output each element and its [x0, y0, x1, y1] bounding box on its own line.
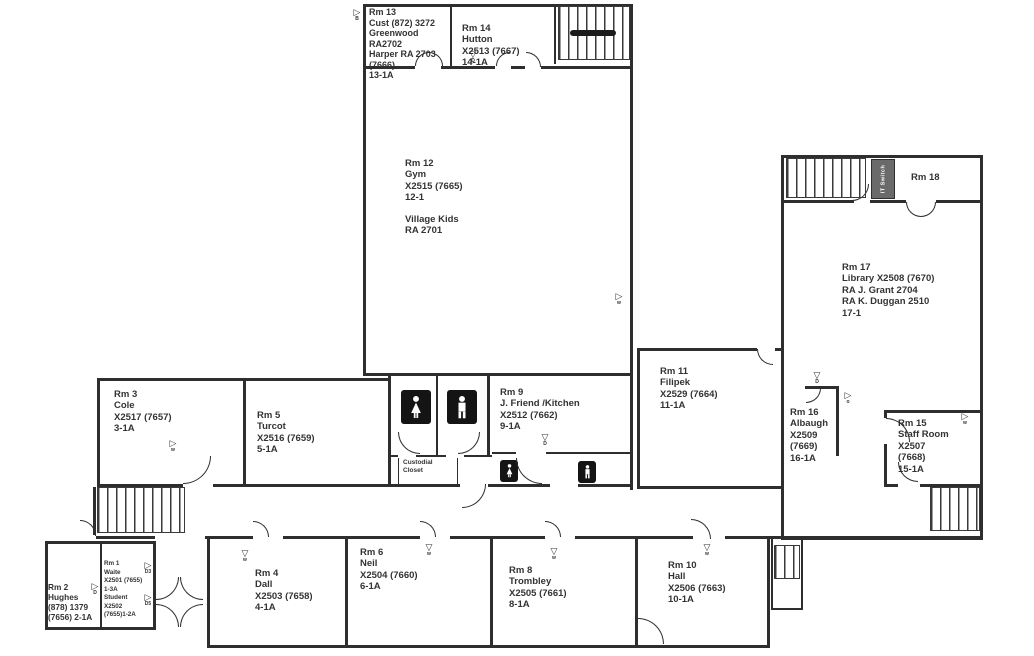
- door-swing-arc: [906, 202, 921, 217]
- label-line: Turcot: [257, 421, 315, 432]
- label-line: Albaugh: [790, 418, 828, 429]
- room-label-rm2: Rm 2Hughes(878) 1379(7656) 2-1A: [48, 583, 92, 623]
- marker-label: w: [166, 448, 180, 453]
- label-line: 6-1A: [360, 581, 418, 592]
- label-line: Rm 1: [104, 560, 142, 569]
- label-line: Rm 6: [360, 547, 418, 558]
- wall: [93, 536, 983, 539]
- door-window-marker: ▽w: [700, 543, 714, 557]
- marker-label: w: [547, 556, 561, 561]
- wall: [450, 4, 452, 68]
- wall: [771, 536, 773, 610]
- door-swing-arc: [180, 604, 203, 627]
- label-line: Neil: [360, 558, 418, 569]
- label-line: Dall: [255, 579, 313, 590]
- room-label-rm18: Rm 18: [911, 172, 940, 183]
- door-window-marker: ▽w: [238, 549, 252, 563]
- marker-label: D: [88, 591, 102, 596]
- label-line: (7669): [790, 441, 828, 452]
- label-line: Waite: [104, 569, 142, 578]
- restroom-men-small-icon: [578, 461, 596, 483]
- stairs-icon: [558, 6, 630, 60]
- wall: [980, 155, 983, 540]
- label-line: Library X2508 (7670): [842, 273, 934, 284]
- marker-label: w: [612, 301, 626, 306]
- restroom-men-icon: [447, 390, 477, 424]
- room-label-rm11: Rm 11FilipekX2529 (7664)11-1A: [660, 366, 718, 412]
- label-line: RA J. Grant 2704: [842, 285, 934, 296]
- wall: [781, 155, 784, 540]
- label-line: (7656) 2-1A: [48, 613, 92, 623]
- stairs-icon: [774, 545, 800, 579]
- door-swing-arc: [183, 456, 211, 484]
- room-label-rm17-library: Rm 17Library X2508 (7670)RA J. Grant 270…: [842, 262, 934, 319]
- label-line: Rm 10: [668, 560, 726, 571]
- label-line: X2529 (7664): [660, 389, 718, 400]
- door-swing-arc: [420, 521, 436, 537]
- door-swing-arc: [253, 521, 269, 537]
- wall: [390, 484, 633, 487]
- label-line: 11-1A: [660, 400, 718, 411]
- custodial-closet: CustodialCloset: [398, 455, 458, 486]
- door-swing-arc: [156, 604, 179, 627]
- room-label-rm12-gym: Rm 12GymX2515 (7665)12-1Village KidsRA 2…: [405, 158, 463, 236]
- door-window-marker: ▽w: [422, 543, 436, 557]
- room-label-rm10: Rm 10HallX2506 (7663)10-1A: [668, 560, 726, 606]
- door-swing-arc: [429, 52, 443, 66]
- label-line: Rm 18: [911, 172, 940, 183]
- label-line: Rm 8: [509, 565, 567, 576]
- door-window-marker: ▷B: [350, 8, 364, 22]
- label-line: RA 2701: [405, 225, 463, 236]
- label-line: X2507: [898, 441, 949, 452]
- door-opening: [155, 535, 205, 541]
- label-line: Gym: [405, 169, 463, 180]
- marker-label: D5: [141, 602, 155, 607]
- marker-label: D: [466, 59, 480, 64]
- label-line: Trombley: [509, 576, 567, 587]
- wall: [363, 373, 633, 376]
- marker-label: D3: [141, 570, 155, 575]
- label-line: Cust (872) 3272: [369, 18, 436, 29]
- door-opening: [446, 454, 464, 458]
- label-line: X2516 (7659): [257, 433, 315, 444]
- label-line: X2504 (7660): [360, 570, 418, 581]
- label-line: Custodial: [403, 459, 433, 467]
- door-window-marker: ▽D: [466, 50, 480, 64]
- door-opening: [550, 483, 578, 488]
- label-line: 8-1A: [509, 599, 567, 610]
- floor-plan: Rm 13Cust (872) 3272GreenwoodRA2702Harpe…: [0, 0, 1034, 656]
- label-line: 10-1A: [668, 594, 726, 605]
- label-line: (7655)1-2A: [104, 611, 142, 620]
- label-line: Rm 13: [369, 7, 436, 18]
- marker-label: w: [958, 421, 972, 426]
- door-swing-arc: [921, 202, 936, 217]
- wall: [637, 348, 640, 489]
- marker-label: B: [350, 17, 364, 22]
- door-swing-arc: [806, 388, 821, 403]
- wall: [801, 536, 803, 610]
- label-line: 4-1A: [255, 602, 313, 613]
- label-line: 12-1: [405, 192, 463, 203]
- label-line: J. Friend /Kitchen: [500, 398, 580, 409]
- wall: [637, 486, 783, 489]
- wall: [771, 608, 803, 610]
- label-line: Hall: [668, 571, 726, 582]
- restroom-women-small-icon: [500, 460, 518, 482]
- door-window-marker: ▷D3: [141, 561, 155, 575]
- door-opening: [516, 451, 546, 455]
- label-line: Rm 12: [405, 158, 463, 169]
- wall: [554, 4, 556, 64]
- room-label-rm9: Rm 9J. Friend /KitchenX2512 (7662)9-1A: [500, 387, 580, 433]
- label-line: 13-1A: [369, 70, 436, 81]
- label-line: Rm 11: [660, 366, 718, 377]
- wall: [492, 452, 633, 454]
- door-opening: [898, 483, 920, 488]
- stair-handrail: [570, 30, 616, 36]
- label-line: Cole: [114, 400, 172, 411]
- stairs-icon: [97, 487, 185, 533]
- wall: [207, 645, 770, 648]
- door-swing-arc: [638, 618, 664, 644]
- label-line: Closet: [403, 467, 433, 475]
- label-line: X2512 (7662): [500, 410, 580, 421]
- door-window-marker: ▽D: [810, 371, 824, 385]
- label-line: 5-1A: [257, 444, 315, 455]
- wall: [767, 536, 770, 648]
- label-line: Rm 17: [842, 262, 934, 273]
- room-label-rm6: Rm 6NeilX2504 (7660)6-1A: [360, 547, 418, 593]
- label-line: Hutton: [462, 34, 520, 45]
- label-line: Village Kids: [405, 214, 463, 225]
- door-swing-arc: [898, 462, 918, 482]
- wall: [781, 200, 983, 203]
- label-line: X2506 (7663): [668, 583, 726, 594]
- label-line: Rm 9: [500, 387, 580, 398]
- marker-label: w: [238, 558, 252, 563]
- door-swing-arc: [691, 519, 711, 539]
- door-window-marker: ▷o: [841, 391, 855, 405]
- wall: [490, 536, 493, 648]
- wall: [436, 376, 438, 457]
- label-line: 1-3A: [104, 586, 142, 595]
- marker-label: o: [841, 400, 855, 405]
- wall: [363, 4, 366, 376]
- label-line: 9-1A: [500, 421, 580, 432]
- label-line: Greenwood: [369, 28, 436, 39]
- door-opening: [183, 483, 213, 488]
- marker-label: D: [538, 442, 552, 447]
- label-line: 17-1: [842, 308, 934, 319]
- label-line: [405, 204, 463, 214]
- label-line: Filipek: [660, 377, 718, 388]
- wall: [487, 376, 490, 457]
- room-label-rm8: Rm 8TrombleyX2505 (7661)8-1A: [509, 565, 567, 611]
- label-line: X2501 (7655): [104, 577, 142, 586]
- label-line: X2505 (7661): [509, 588, 567, 599]
- label-line: RA2702: [369, 39, 436, 50]
- room-label-rm3: Rm 3ColeX2517 (7657)3-1A: [114, 389, 172, 435]
- door-swing-arc: [458, 432, 480, 454]
- wall: [97, 378, 100, 487]
- door-window-marker: ▷D: [88, 582, 102, 596]
- marker-label: w: [422, 552, 436, 557]
- door-window-marker: ▷D5: [141, 593, 155, 607]
- label-line: X2502: [104, 603, 142, 612]
- label-line: X2517 (7657): [114, 412, 172, 423]
- label-line: 16-1A: [790, 453, 828, 464]
- label-line: Rm 16: [790, 407, 828, 418]
- door-swing-arc: [398, 432, 420, 454]
- label-line: Rm 4: [255, 568, 313, 579]
- it-switch-box: IT Switch: [871, 159, 895, 199]
- label-line: X2509: [790, 430, 828, 441]
- wall: [388, 373, 391, 487]
- label-line: Student: [104, 594, 142, 603]
- wall: [45, 541, 48, 630]
- wall: [345, 536, 348, 648]
- door-swing-arc: [545, 521, 561, 537]
- label-line: RA K. Duggan 2510: [842, 296, 934, 307]
- door-window-marker: ▷w: [612, 292, 626, 306]
- label-line: 3-1A: [114, 423, 172, 434]
- wall: [836, 386, 839, 456]
- wall: [243, 378, 246, 487]
- label-line: Rm 14: [462, 23, 520, 34]
- door-swing-arc: [526, 52, 541, 67]
- stairs-icon: [786, 158, 866, 198]
- room-label-rm16: Rm 16AlbaughX2509(7669)16-1A: [790, 407, 828, 464]
- room-label-rm4: Rm 4DallX2503 (7658)4-1A: [255, 568, 313, 614]
- door-swing-arc: [462, 484, 486, 508]
- label-line: Rm 3: [114, 389, 172, 400]
- door-swing-arc: [516, 458, 542, 484]
- label-line: X2503 (7658): [255, 591, 313, 602]
- label-line: Rm 5: [257, 410, 315, 421]
- door-swing-arc: [156, 577, 179, 600]
- label-line: X2515 (7665): [405, 181, 463, 192]
- stairs-icon: [930, 487, 980, 531]
- it-switch-label: IT Switch: [880, 165, 886, 194]
- door-window-marker: ▷w: [958, 412, 972, 426]
- wall: [207, 536, 210, 648]
- door-window-marker: ▽w: [547, 547, 561, 561]
- door-opening: [398, 454, 416, 458]
- door-swing-arc: [180, 577, 203, 600]
- marker-label: D: [810, 380, 824, 385]
- marker-label: w: [700, 552, 714, 557]
- door-window-marker: ▽D: [538, 433, 552, 447]
- door-swing-arc: [757, 349, 773, 365]
- door-window-marker: ▷w: [166, 439, 180, 453]
- custodial-closet-label: CustodialCloset: [403, 459, 433, 475]
- restroom-women-icon: [401, 390, 431, 424]
- room-label-rm1: Rm 1WaiteX2501 (7655)1-3AStudentX2502(76…: [104, 560, 142, 620]
- wall: [630, 4, 633, 490]
- room-label-rm5: Rm 5TurcotX2516 (7659)5-1A: [257, 410, 315, 456]
